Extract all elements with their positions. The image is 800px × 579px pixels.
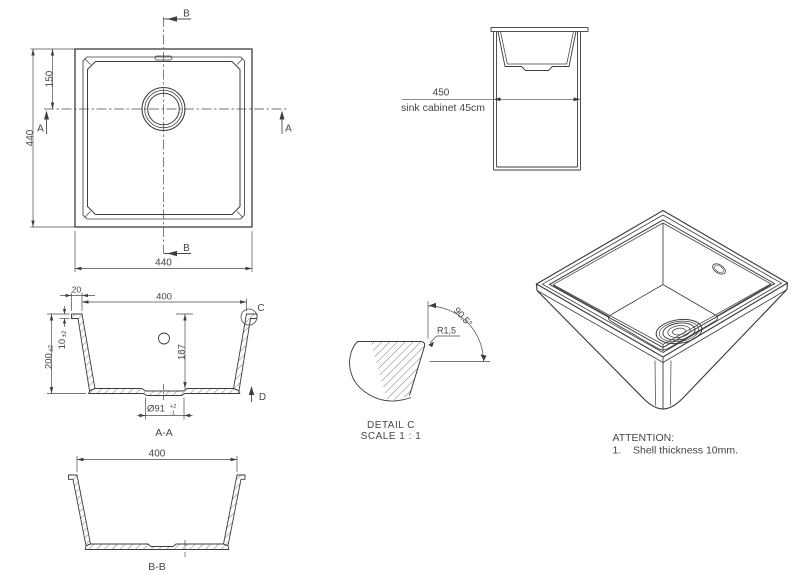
detail-c-title: DETAIL C: [367, 420, 415, 431]
section-aa-view: 20 400 200±2 10±2 187 Ø91 +2 -1 A-A C D: [44, 285, 267, 440]
section-arrow-b-top: [167, 16, 177, 22]
attention-item-text: Shell thickness 10mm.: [633, 445, 738, 457]
marker-a-right-label: A: [285, 124, 292, 135]
iso-drain: [655, 317, 704, 347]
direction-d-label: D: [259, 392, 266, 403]
dim-width-label: 440: [155, 258, 172, 269]
aa-thickness-dim-label: 10±2: [57, 330, 68, 349]
marker-b-bottom-label: B: [183, 243, 190, 254]
cabinet-outline: [491, 28, 588, 171]
cabinet-caption: sink cabinet 45cm: [401, 102, 485, 114]
dim-drain-offset-label: 150: [45, 70, 56, 87]
direction-arrow-d: [249, 386, 254, 395]
detail-wall-hatch: [371, 342, 424, 400]
aa-height-dim-label: 200±2: [44, 344, 55, 369]
aa-depth-dim-label: 187: [177, 344, 188, 360]
attention-note: ATTENTION: 1. Shell thickness 10mm.: [613, 432, 739, 457]
section-markers: [44, 16, 285, 256]
iso-overflow-hole: [711, 262, 727, 277]
overflow-hole-section: [159, 333, 170, 344]
bb-opening-dim-label: 400: [149, 449, 166, 460]
cabinet-view: 450 sink cabinet 45cm: [401, 28, 588, 171]
iso-bowl: [553, 223, 771, 352]
aa-drain-dim-label: Ø91: [147, 404, 165, 415]
attention-title: ATTENTION:: [613, 432, 675, 444]
aa-flange-dim-label: 20: [72, 285, 82, 295]
iso-rim: [537, 211, 788, 358]
section-bb-shell: [69, 475, 246, 557]
marker-b-top-label: B: [183, 9, 190, 20]
section-bb-title: B-B: [148, 561, 166, 573]
plan-view: 440 150 440 B B A A: [25, 9, 292, 273]
isometric-view: [537, 211, 788, 410]
section-bb-view: 400 B-B: [69, 449, 246, 574]
drawing-sheet: 440 150 440 B B A A 450: [0, 0, 800, 579]
section-aa-title: A-A: [155, 427, 173, 439]
section-arrow-a-right: [280, 111, 285, 120]
aa-drain-tol-plus: +2: [170, 404, 176, 410]
aa-opening-dim-label: 400: [156, 292, 172, 303]
attention-item-number: 1.: [613, 445, 622, 457]
technical-drawing-canvas: 440 150 440 B B A A 450: [0, 0, 800, 579]
sink-bowl-side: [498, 32, 576, 71]
cabinet-dim-label: 450: [433, 88, 450, 99]
section-aa-shell: [72, 314, 258, 400]
marker-a-left-label: A: [37, 124, 44, 135]
section-arrow-a-left: [44, 111, 49, 120]
detail-c-view: R1,5 90.5° DETAIL C SCALE 1 : 1: [350, 301, 490, 442]
detail-radius-label: R1,5: [437, 326, 456, 336]
section-arrow-b-bottom: [167, 251, 177, 257]
cabinet-dimension: [402, 97, 581, 101]
dim-height-label: 440: [25, 129, 36, 146]
aa-drain-tol-minus: -1: [170, 411, 175, 417]
plan-dimensions: [31, 49, 253, 272]
detail-c-scale: SCALE 1 : 1: [361, 431, 422, 442]
section-aa-dimensions: [47, 293, 257, 420]
detail-c-marker-label: C: [257, 303, 264, 314]
